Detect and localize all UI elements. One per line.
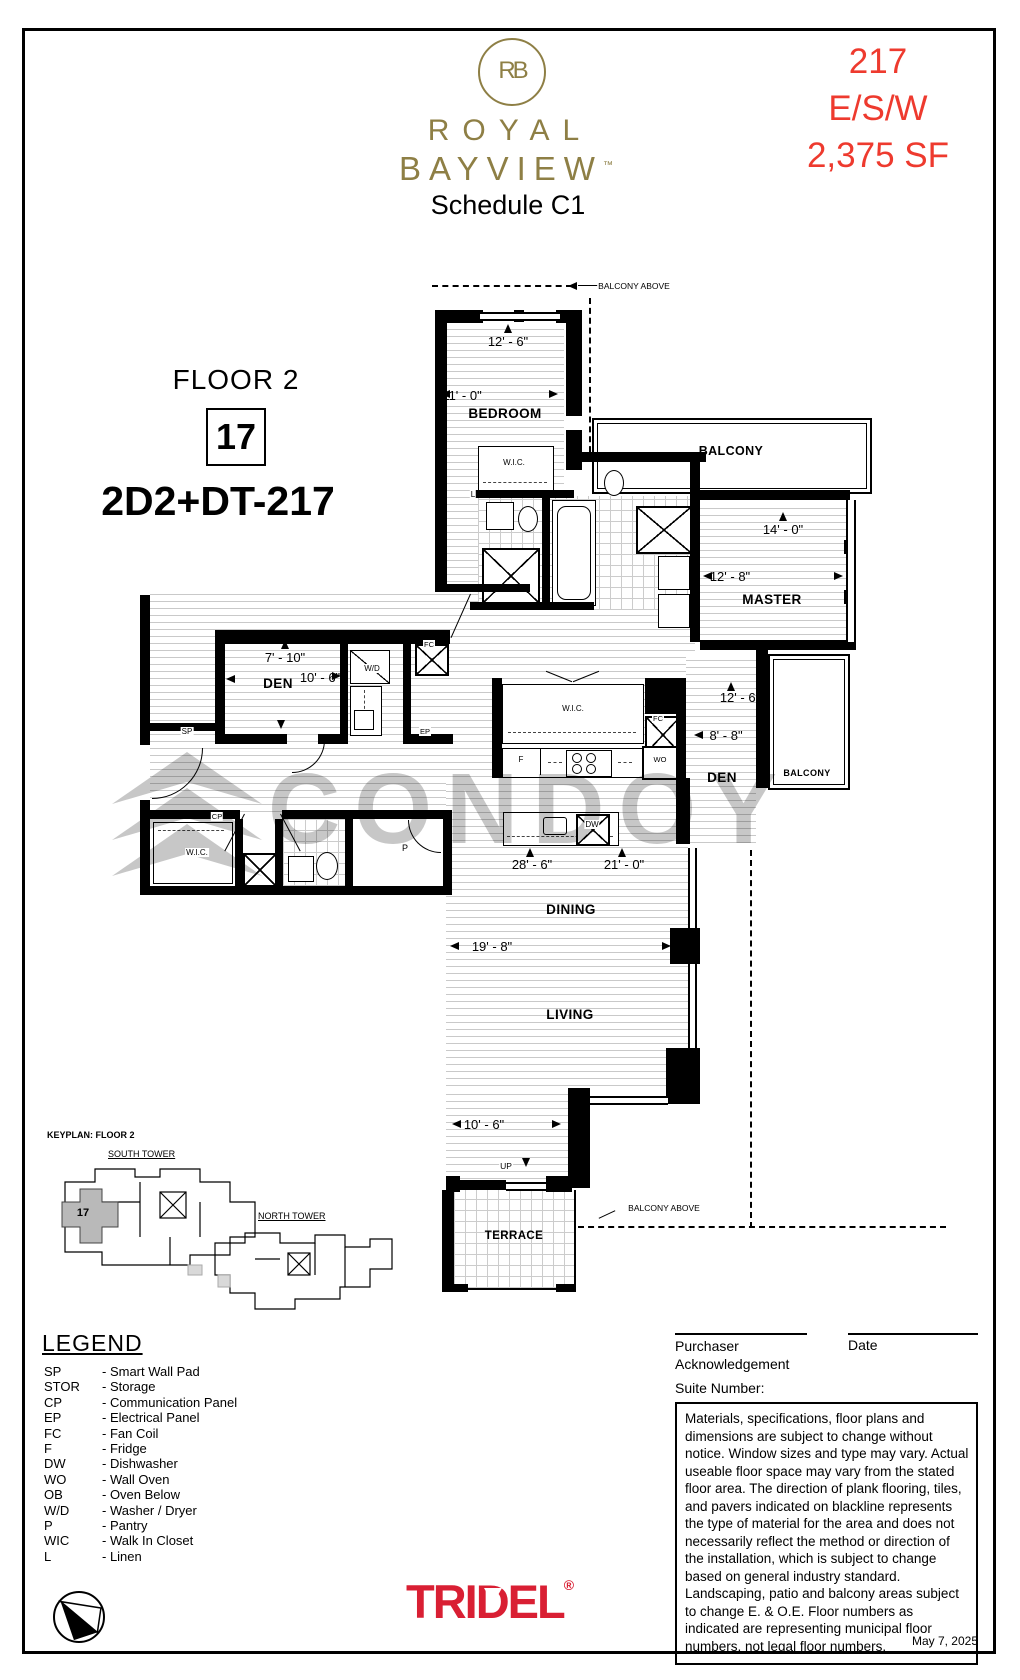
window-wall: [590, 1096, 668, 1105]
fan-coil-label: FC: [423, 640, 435, 649]
dim-arrow: [779, 512, 787, 521]
floorplan-sheet: RB ROYAL BAYVIEW™ Schedule C1 217 E/S/W …: [0, 0, 1020, 1680]
bedroom-depth-dim: 11' - 0": [442, 388, 481, 403]
keyplan-north-tower-outline: [215, 1233, 392, 1309]
communication-panel-label: CP: [211, 812, 223, 821]
master-label: MASTER: [742, 592, 801, 607]
den2-label: DEN: [707, 770, 737, 785]
balcony-above-label-top: BALCONY ABOVE: [597, 281, 671, 291]
date-label: Date: [848, 1337, 878, 1353]
living-depth-dim: 19' - 8": [472, 939, 512, 954]
unit-number: 217: [762, 38, 994, 85]
unit-area: 2,375 SF: [762, 132, 994, 179]
wall-segment: [442, 1284, 468, 1292]
up-label: UP: [499, 1161, 513, 1171]
suite-number-label: Suite Number:: [675, 1380, 764, 1396]
den2-width-dim: 8' - 8": [709, 728, 742, 743]
balcony-above-dash-right: [750, 850, 752, 1228]
terrace-label: TERRACE: [485, 1230, 543, 1242]
bedroom-width-dim: 12' - 6": [488, 334, 528, 349]
great-b-dim: 21' - 0": [604, 857, 644, 872]
keyplan-drawing: [40, 1147, 400, 1327]
dim-arrow: [694, 731, 703, 739]
washer-dryer-label: W/D: [363, 664, 381, 673]
keyplan-unit-17-highlight: [62, 1189, 118, 1243]
shower: [482, 548, 540, 604]
model-code: 2D2+DT-217: [101, 478, 335, 525]
dining-label: DINING: [546, 902, 596, 917]
wall-segment: [442, 1190, 454, 1290]
terrace-door: [506, 1182, 546, 1191]
legend-item: L- Linen: [44, 1549, 304, 1564]
tridel-logo: TRIDEL®: [406, 1574, 574, 1629]
living-width-dim: 10' - 6": [464, 1117, 504, 1132]
master-depth-dim: 12' - 8": [710, 569, 750, 584]
dim-arrow: [277, 720, 285, 729]
purchaser-signature-line: [675, 1333, 807, 1335]
dim-arrow: [281, 640, 289, 649]
fridge-label: F: [518, 755, 525, 764]
wall-segment: [690, 460, 700, 642]
column: [568, 1088, 590, 1188]
smart-wall-pad-label: SP: [181, 727, 194, 736]
legend-item: WIC- Walk In Closet: [44, 1533, 304, 1548]
dim-arrow: [226, 675, 235, 683]
wic1-box: [478, 446, 554, 492]
keyplan-south-tower-label: SOUTH TOWER: [108, 1149, 175, 1159]
wic2-label: W.I.C.: [185, 848, 209, 857]
column: [666, 1048, 700, 1104]
balcony-above-dash-top: [432, 285, 572, 287]
balcony-above-dash-vert: [589, 298, 591, 462]
royal-bayview-logo-circle: RB: [478, 38, 546, 106]
master-width-dim: 14' - 0": [763, 522, 803, 537]
laundry-tub: [354, 710, 374, 730]
legend-list: SP- Smart Wall Pad STOR- Storage CP- Com…: [44, 1364, 304, 1564]
legend-item: F- Fridge: [44, 1441, 304, 1456]
disclaimer-box: Materials, specifications, floor plans a…: [675, 1402, 978, 1665]
brand-royal: ROYAL: [428, 114, 592, 148]
balcony-above-label-bottom: BALCONY ABOVE: [627, 1203, 701, 1213]
dim-arrow: [760, 731, 769, 739]
leader-line: [578, 285, 598, 286]
wall-segment: [556, 1284, 576, 1292]
keyplan-title: KEYPLAN: FLOOR 2: [47, 1130, 135, 1140]
column: [670, 928, 700, 964]
balcony-above-dash-bottom: [578, 1226, 946, 1228]
vanity-sink: [658, 594, 690, 628]
wall-segment: [435, 584, 530, 592]
schedule-title: Schedule C1: [431, 190, 586, 221]
legend-item: CP- Communication Panel: [44, 1395, 304, 1410]
wall-segment: [435, 310, 483, 323]
north-arrow-compass-icon: [50, 1588, 108, 1646]
floor-label: FLOOR 2: [173, 364, 300, 396]
dim-arrow: [618, 848, 626, 857]
disclaimer-text: Materials, specifications, floor plans a…: [677, 1404, 976, 1663]
window-wall: [688, 964, 697, 1048]
wic1-label: W.I.C.: [502, 458, 526, 467]
legend-item: STOR- Storage: [44, 1379, 304, 1394]
wall-segment: [140, 595, 150, 745]
wic3-label: W.I.C.: [561, 704, 585, 713]
closet-shelf: [508, 732, 636, 733]
wall-segment: [140, 886, 450, 895]
fan-coil-label: FC: [652, 714, 664, 723]
wall-segment: [542, 496, 550, 610]
keyplan-unit-number: 17: [77, 1207, 89, 1219]
window: [480, 312, 560, 321]
wall-segment: [566, 310, 582, 416]
legend-item: OB- Oven Below: [44, 1487, 304, 1502]
legend-item: EP- Electrical Panel: [44, 1410, 304, 1425]
bathtub-basin: [557, 506, 591, 600]
linen-label: L: [470, 490, 476, 499]
toilet: [604, 470, 624, 496]
dim-arrow: [526, 848, 534, 857]
registered-mark: ®: [564, 1577, 574, 1593]
wic3-box: [502, 684, 644, 744]
keyplan-north-tower-label: NORTH TOWER: [258, 1211, 326, 1221]
legend-item: W/D- Washer / Dryer: [44, 1503, 304, 1518]
unit-info: 217 E/S/W 2,375 SF: [762, 38, 994, 179]
balcony-right-label: BALCONY: [783, 768, 830, 778]
wall-segment: [215, 630, 450, 644]
pantry-label: P: [401, 843, 409, 853]
dishwasher-label: DW: [584, 820, 599, 829]
terrace-rail: [574, 1190, 576, 1290]
dim-arrow: [662, 942, 671, 950]
dim-arrow: [549, 390, 558, 398]
wall-segment: [566, 430, 582, 470]
living-label: LIVING: [546, 1007, 593, 1022]
dim-arrow: [332, 672, 341, 680]
legend-title: LEGEND: [42, 1330, 143, 1357]
plan-date: May 7, 2025: [838, 1634, 978, 1648]
unit-exposure: E/S/W: [762, 85, 994, 132]
den2-depth-dim: 12' - 6": [720, 690, 760, 705]
den1-depth-dim: 7' - 10": [265, 650, 305, 665]
toilet: [518, 506, 538, 532]
purchaser-ack-label: Purchaser Acknowledgement: [675, 1337, 789, 1373]
legend-item: DW- Dishwasher: [44, 1456, 304, 1471]
closet-shelf: [483, 482, 547, 483]
wall-segment: [645, 678, 679, 714]
legend-item: WO- Wall Oven: [44, 1472, 304, 1487]
wall-segment: [411, 734, 453, 744]
trademark-symbol: ™: [603, 160, 621, 171]
legend-item: FC- Fan Coil: [44, 1426, 304, 1441]
dim-arrow: [450, 942, 459, 950]
wall-segment: [470, 490, 574, 498]
wall-segment: [215, 734, 287, 744]
dim-arrow: [552, 1120, 561, 1128]
tridel-triangle-icon: [484, 1588, 502, 1604]
legend-item: SP- Smart Wall Pad: [44, 1364, 304, 1379]
wall-segment: [446, 1180, 506, 1190]
window-wall: [846, 500, 856, 642]
legend-item: P- Pantry: [44, 1518, 304, 1533]
condoy-watermark-glyph: [112, 752, 262, 876]
wall-segment: [576, 452, 706, 462]
wall-segment: [340, 644, 348, 744]
dim-arrow: [504, 324, 512, 333]
wall-segment: [470, 602, 594, 610]
dim-arrow: [834, 572, 843, 580]
bedroom-label: BEDROOM: [468, 406, 541, 421]
date-signature-line: [848, 1333, 978, 1335]
wall-segment: [435, 310, 447, 592]
leader-arrow: [568, 282, 577, 290]
electrical-panel-label: EP: [419, 727, 431, 736]
tridel-d: D: [476, 1574, 508, 1629]
balcony-top-label: BALCONY: [699, 444, 764, 458]
dim-arrow: [452, 1120, 461, 1128]
shower: [636, 506, 692, 554]
wall-segment: [215, 630, 225, 742]
wall-segment: [403, 644, 411, 744]
vanity-sink: [658, 556, 690, 590]
dim-arrow: [522, 1158, 530, 1167]
wall-segment: [700, 490, 850, 500]
great-a-dim: 28' - 6": [512, 857, 552, 872]
rb-monogram: RB: [498, 57, 525, 84]
wall-segment: [546, 1176, 572, 1192]
den1-label: DEN: [263, 676, 293, 691]
wall-segment: [700, 640, 856, 650]
brand-bayview: BAYVIEW™: [399, 150, 621, 188]
sink: [486, 502, 514, 530]
wall-oven-label: WO: [653, 755, 668, 764]
unit-box: 17: [206, 408, 266, 466]
